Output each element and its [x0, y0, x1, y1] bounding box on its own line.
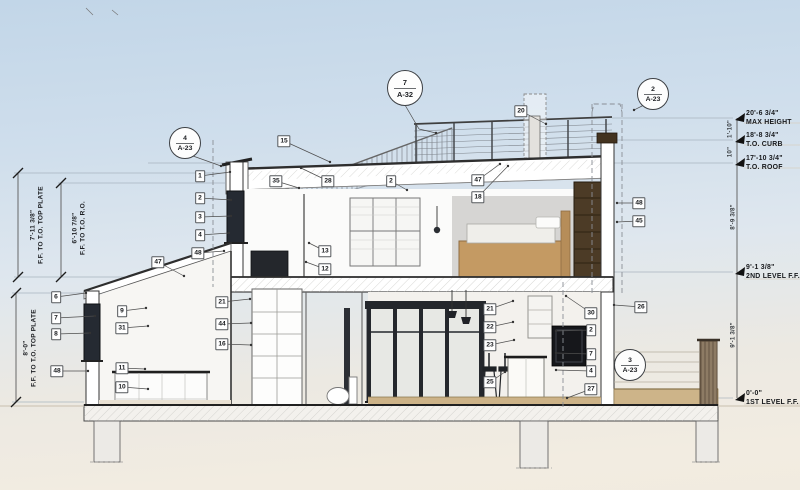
vertical-dim-label: 10" — [727, 147, 734, 157]
ref-tag-7: 7 — [586, 348, 596, 360]
ref-tag-9: 9 — [117, 305, 127, 317]
ref-tag-2: 2 — [586, 324, 596, 336]
callout-number: 2 — [644, 86, 663, 95]
ref-tag-48: 48 — [191, 247, 204, 259]
ref-tag-45: 45 — [632, 215, 645, 227]
architectural-section-canvas: 1234484715352821312204718484567848931111… — [0, 0, 800, 490]
elevation-name: 2ND LEVEL F.F. — [746, 273, 800, 282]
ref-tag-2: 2 — [195, 192, 205, 204]
elevation-dim: 0'-0" — [746, 390, 799, 399]
ref-tag-7: 7 — [51, 312, 61, 324]
foundation — [0, 405, 800, 468]
callout-sheet: A-23 — [623, 366, 638, 374]
left-dim-name: F.F. TO T.O. TOP PLATE — [31, 309, 39, 387]
vertical-dim-label: 1'-10" — [727, 120, 734, 138]
ref-tag-21: 21 — [483, 303, 496, 315]
elevation-label: 17'-10 3/4"T.O. ROOF — [746, 155, 783, 172]
elevation-dim: 9'-1 3/8" — [746, 264, 800, 273]
ref-tag-1: 1 — [195, 170, 205, 182]
ref-tag-15: 15 — [277, 135, 290, 147]
ref-tag-44: 44 — [215, 318, 228, 330]
ref-tag-47: 47 — [151, 256, 164, 268]
ref-tag-47: 47 — [471, 174, 484, 186]
elevation-label: 18'-8 3/4"T.O. CURB — [746, 132, 783, 149]
elevation-name: T.O. CURB — [746, 141, 783, 150]
callout-sheet: A-32 — [397, 89, 413, 99]
ref-tag-11: 11 — [116, 362, 129, 374]
elevation-name: MAX HEIGHT — [746, 119, 792, 128]
left-dim-label: 7'-11 3/8"F.F. TO T.O. TOP PLATE — [30, 186, 47, 264]
ref-tag-27: 27 — [584, 383, 597, 395]
ref-tag-48: 48 — [632, 197, 645, 209]
ref-tag-28: 28 — [321, 175, 334, 187]
ref-tag-22: 22 — [483, 321, 496, 333]
callout-sheet: A-23 — [646, 95, 661, 103]
callout-number: 3 — [621, 357, 640, 366]
ref-tag-25: 25 — [483, 376, 496, 388]
callout-number: 7 — [394, 78, 415, 89]
left-dim-label: 6'-10 7/8"F.F. TO T.O. R.O. — [72, 201, 89, 255]
left-dim-value: 7'-11 3/8" — [30, 210, 38, 241]
ref-tag-10: 10 — [115, 381, 128, 393]
ref-tag-13: 13 — [318, 245, 331, 257]
detail-callout-4-A-23: 4A-23 — [169, 127, 201, 159]
ref-tag-6: 6 — [51, 291, 61, 303]
ref-tag-16: 16 — [215, 338, 228, 350]
left-dim-value: 6'-10 7/8" — [72, 213, 80, 244]
elevation-dim: 18'-8 3/4" — [746, 132, 783, 141]
elevation-name: 1ST LEVEL F.F. — [746, 399, 799, 408]
ref-tag-8: 8 — [51, 328, 61, 340]
left-dim-name: F.F. TO T.O. TOP PLATE — [38, 186, 46, 264]
callout-number: 4 — [176, 135, 195, 144]
ref-tag-4: 4 — [195, 229, 205, 241]
detail-callout-3-A-23: 3A-23 — [614, 349, 646, 381]
elevation-dim: 17'-10 3/4" — [746, 155, 783, 164]
ref-tag-23: 23 — [483, 339, 496, 351]
ref-tag-12: 12 — [318, 263, 331, 275]
ref-tag-20: 20 — [514, 105, 527, 117]
ref-tag-26: 26 — [634, 301, 647, 313]
detail-callout-2-A-23: 2A-23 — [637, 78, 669, 110]
elevation-dim: 20'-6 3/4" — [746, 110, 792, 119]
vertical-dim-label: 8'-9 3/8" — [730, 204, 737, 229]
roof-flue — [524, 94, 546, 158]
ref-tag-35: 35 — [269, 175, 282, 187]
detail-callout-7-A-32: 7A-32 — [387, 70, 423, 106]
left-dim-label: 8'-0"F.F. TO T.O. TOP PLATE — [23, 309, 40, 387]
ref-tag-21: 21 — [215, 296, 228, 308]
ref-tag-2: 2 — [386, 175, 396, 187]
elevation-name: T.O. ROOF — [746, 164, 783, 173]
ref-tag-3: 3 — [195, 211, 205, 223]
ref-tag-18: 18 — [471, 191, 484, 203]
elevation-label: 9'-1 3/8"2ND LEVEL F.F. — [746, 264, 800, 281]
left-dim-name: F.F. TO T.O. R.O. — [80, 201, 88, 255]
ref-tag-48: 48 — [50, 365, 63, 377]
left-dim-value: 8'-0" — [23, 340, 31, 355]
vertical-dim-label: 9'-1 3/8" — [730, 322, 737, 347]
ref-tag-31: 31 — [115, 322, 128, 334]
elevation-label: 0'-0"1ST LEVEL F.F. — [746, 390, 799, 407]
elevation-label: 20'-6 3/4"MAX HEIGHT — [746, 110, 792, 127]
ref-tag-4: 4 — [586, 365, 596, 377]
ref-tag-30: 30 — [584, 307, 597, 319]
callout-sheet: A-23 — [178, 144, 193, 152]
